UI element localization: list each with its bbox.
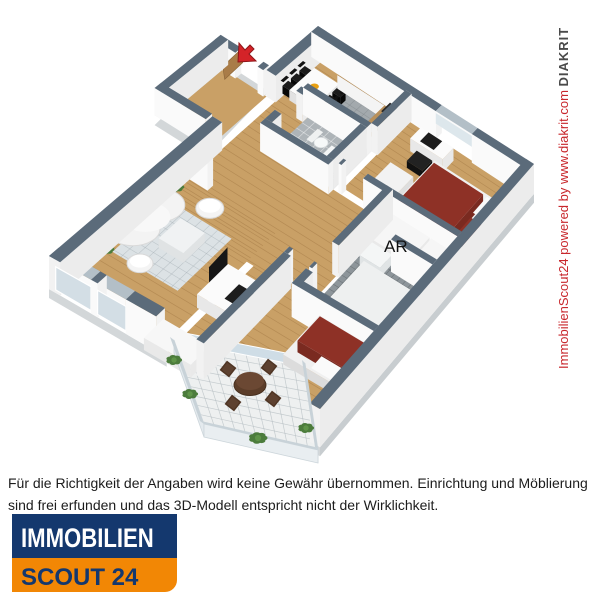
svg-text:sind frei erfunden und das 3D-: sind frei erfunden und das 3D-Modell ent…: [8, 497, 438, 513]
svg-text:SCOUT 24: SCOUT 24: [21, 564, 139, 591]
svg-text:Für die Richtigkeit der Angabe: Für die Richtigkeit der Angaben wird kei…: [8, 475, 588, 491]
svg-text:AR: AR: [384, 237, 408, 256]
svg-text:ImmobilienScout24 powered by w: ImmobilienScout24 powered by www.diakrit…: [556, 27, 571, 369]
svg-text:IMMOBILIEN: IMMOBILIEN: [21, 524, 154, 554]
